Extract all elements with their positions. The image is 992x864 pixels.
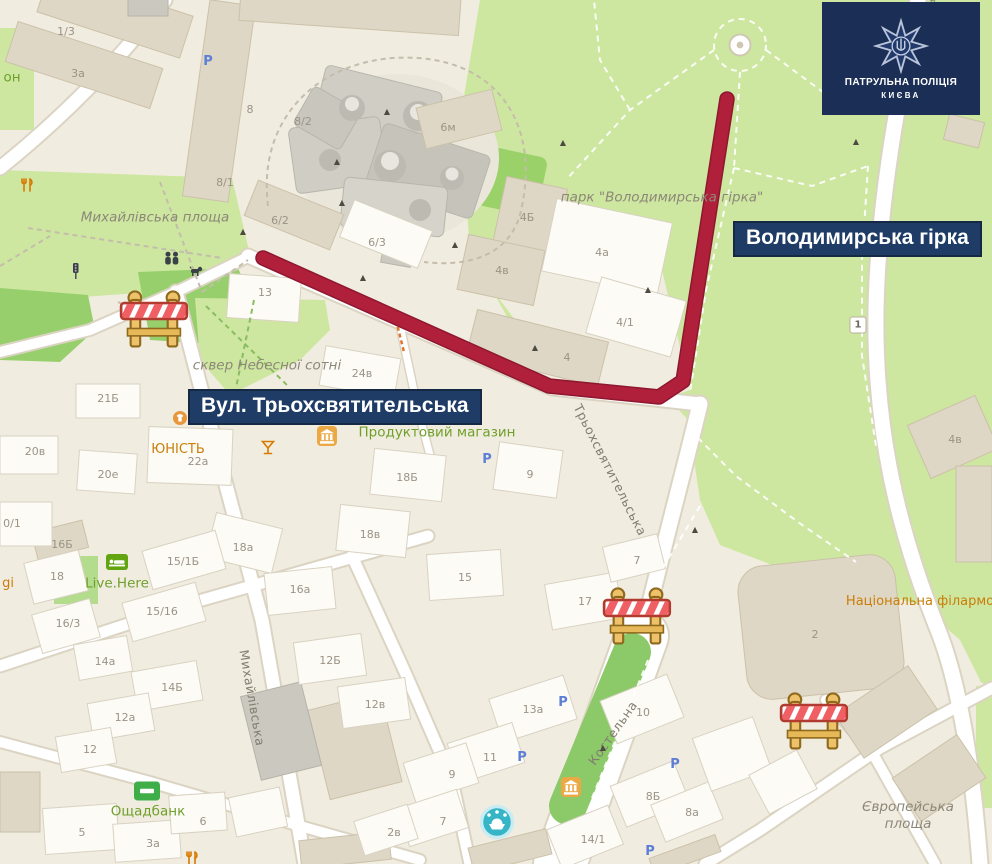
place-label: Михайлівська площа	[81, 210, 230, 227]
people-icon	[163, 251, 181, 265]
restaurant-icon	[184, 850, 200, 864]
building-number: 0/1	[3, 517, 21, 531]
building-number: 9	[527, 468, 534, 482]
building-number: 18Б	[396, 471, 418, 485]
road-shield: 1	[850, 317, 867, 334]
building-number: 16/3	[56, 617, 81, 631]
building-number: 11	[483, 751, 497, 765]
building-number: 4Б	[520, 211, 535, 225]
building-number: 16Б	[51, 538, 73, 552]
poi-label: Продуктовий магазин	[359, 425, 516, 442]
building-number: 6/2	[271, 214, 289, 228]
building-number: 8а	[685, 806, 699, 820]
closed-street-banner: Вул. Трьохсвятительська	[188, 389, 482, 425]
place-label: Європейська площа	[862, 799, 954, 833]
parking-icon: P	[203, 54, 213, 70]
building-number: 20в	[25, 445, 45, 459]
hotel-icon	[106, 554, 128, 570]
building-number: 22а	[188, 455, 209, 469]
building-number: 7	[440, 815, 447, 829]
building-number: 12Б	[319, 654, 341, 668]
building-number: 4в	[495, 264, 508, 278]
shop-icon	[173, 411, 188, 426]
place-label: сквер Небесної сотні	[193, 358, 341, 375]
monument-icon: ▲	[853, 137, 859, 147]
street-name-label: Михайлівська	[236, 649, 268, 748]
building-number: 13	[258, 286, 272, 300]
bank-icon	[317, 426, 337, 446]
patrol-police-logo: ПАТРУЛЬНА ПОЛІЦІЯ КИЄВА	[822, 2, 980, 115]
poi-label: Ощадбанк	[111, 804, 186, 821]
building-number: 15	[458, 571, 472, 585]
building-number: 2в	[387, 826, 400, 840]
fountain-icon	[477, 802, 517, 842]
building-number: 3а	[71, 67, 85, 81]
monument-icon: ▲	[600, 743, 606, 753]
building-number: 18	[50, 570, 64, 584]
building-number: 8/1	[216, 176, 234, 190]
logo-org-name: ПАТРУЛЬНА ПОЛІЦІЯ	[845, 77, 957, 88]
building-number: 16а	[290, 583, 311, 597]
parking-icon: P	[482, 452, 492, 468]
poi-label: Національна філармонія	[846, 594, 992, 610]
monument-icon: ▲	[339, 198, 345, 208]
building-number: 12в	[365, 698, 385, 712]
building-number: 8/2	[294, 115, 312, 129]
building-number: 15/1Б	[167, 555, 199, 569]
poi-label: он	[3, 70, 20, 87]
building-number: 3а	[146, 837, 160, 851]
police-star-icon	[873, 18, 929, 74]
building-number: 2	[812, 628, 819, 642]
monument-icon: ▲	[452, 240, 458, 250]
building-number: 15/16	[146, 605, 178, 619]
monument-icon: ▲	[645, 285, 651, 295]
parking-icon: P	[645, 844, 655, 860]
building-number: 21Б	[97, 392, 119, 406]
map-screenshot: Михайлівська площасквер Небесної сотніпа…	[0, 0, 992, 864]
poi-label: gi	[2, 576, 14, 592]
building-number: 13а	[523, 703, 544, 717]
building-number: 20е	[98, 468, 119, 482]
monument-icon: ▲	[692, 525, 698, 535]
building-number: 6	[200, 815, 207, 829]
building-number: 14/1	[581, 833, 606, 847]
building-number: 8	[247, 103, 254, 117]
building-number: 1/3	[57, 25, 75, 39]
park-name-banner: Володимирська гірка	[733, 221, 982, 257]
monument-icon: ▲	[334, 157, 340, 167]
building-number: 9	[449, 768, 456, 782]
parking-icon: P	[670, 757, 680, 773]
barrier-icon	[602, 586, 674, 648]
building-number: 24в	[352, 367, 372, 381]
monument-icon: ▲	[384, 107, 390, 117]
plaza-icon	[727, 32, 753, 58]
building-number: 4а	[595, 246, 609, 260]
building-number: 6м	[440, 121, 455, 135]
building-number: 12а	[115, 711, 136, 725]
building-number: 4в	[948, 433, 961, 447]
building-number: 10	[636, 706, 650, 720]
building-number: 14Б	[161, 681, 183, 695]
monument-icon: ▲	[360, 273, 366, 283]
building-number: 6/3	[368, 236, 386, 250]
dog-icon	[189, 266, 203, 277]
traffic-light-icon	[72, 263, 81, 279]
poi-label: Live.Here	[85, 576, 149, 593]
logo-city-name: КИЄВА	[881, 91, 920, 100]
barrier-icon	[119, 289, 191, 351]
street-name-label: Костельна	[585, 698, 641, 768]
bank-icon	[561, 777, 581, 797]
building-number: 8Б	[646, 790, 661, 804]
cocktail-icon	[260, 439, 276, 456]
monument-icon: ▲	[240, 227, 246, 237]
building-number: 14а	[95, 655, 116, 669]
building-number: 18а	[233, 541, 254, 555]
building-number: 7	[634, 554, 641, 568]
atm-icon	[134, 782, 160, 801]
building-number: 4/1	[616, 316, 634, 330]
barrier-icon	[779, 691, 851, 753]
building-number: 5	[79, 826, 86, 840]
street-name-label: Трьохсвятительська	[570, 402, 650, 539]
building-number: 17	[578, 595, 592, 609]
parking-icon: P	[517, 750, 527, 766]
map-overlay: Михайлівська площасквер Небесної сотніпа…	[0, 0, 992, 864]
monument-icon: ▲	[560, 138, 566, 148]
building-number: 12	[83, 743, 97, 757]
monument-icon: ▲	[532, 343, 538, 353]
building-number: 4	[564, 351, 571, 365]
parking-icon: P	[558, 695, 568, 711]
place-label: парк "Володимирська гірка"	[561, 190, 764, 207]
restaurant-icon	[19, 177, 35, 193]
building-number: 18в	[360, 528, 380, 542]
